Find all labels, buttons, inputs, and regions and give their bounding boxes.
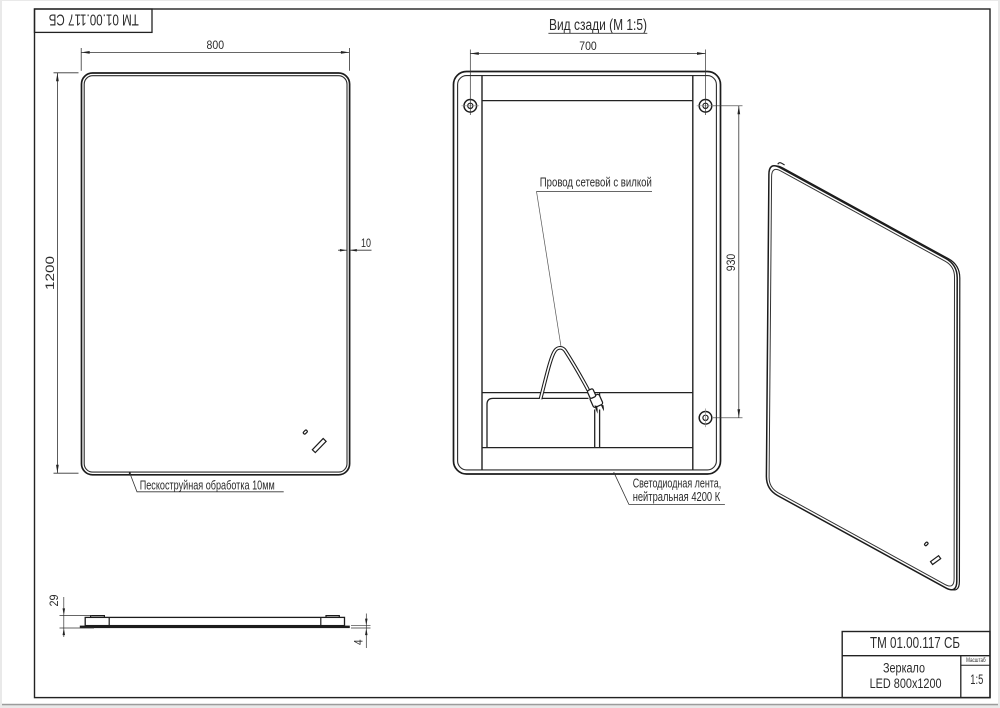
svg-text:ТМ 01.00.117 СБ: ТМ 01.00.117 СБ bbox=[870, 635, 960, 652]
svg-text:Зеркало: Зеркало bbox=[883, 660, 925, 675]
svg-text:700: 700 bbox=[579, 39, 597, 53]
svg-text:LED 800x1200: LED 800x1200 bbox=[870, 675, 942, 691]
svg-text:800: 800 bbox=[207, 38, 225, 52]
svg-text:1200: 1200 bbox=[43, 256, 57, 290]
svg-text:1:5: 1:5 bbox=[970, 672, 983, 687]
svg-text:10: 10 bbox=[361, 236, 371, 250]
svg-text:4: 4 bbox=[352, 639, 366, 645]
svg-text:Светодиодная лента,: Светодиодная лента, bbox=[633, 477, 722, 491]
svg-text:нейтральная 4200 К: нейтральная 4200 К bbox=[633, 490, 721, 504]
svg-text:29: 29 bbox=[47, 594, 61, 606]
svg-text:Провод сетевой с вилкой: Провод сетевой с вилкой bbox=[540, 176, 652, 190]
svg-text:930: 930 bbox=[724, 253, 738, 271]
svg-text:Пескоструйная обработка 10мм: Пескоструйная обработка 10мм bbox=[140, 478, 275, 492]
svg-text:Масштаб: Масштаб bbox=[966, 658, 986, 664]
svg-text:Вид сзади (М 1:5): Вид сзади (М 1:5) bbox=[549, 17, 647, 34]
svg-text:ТМ 01.00.117 СБ: ТМ 01.00.117 СБ bbox=[49, 10, 139, 27]
